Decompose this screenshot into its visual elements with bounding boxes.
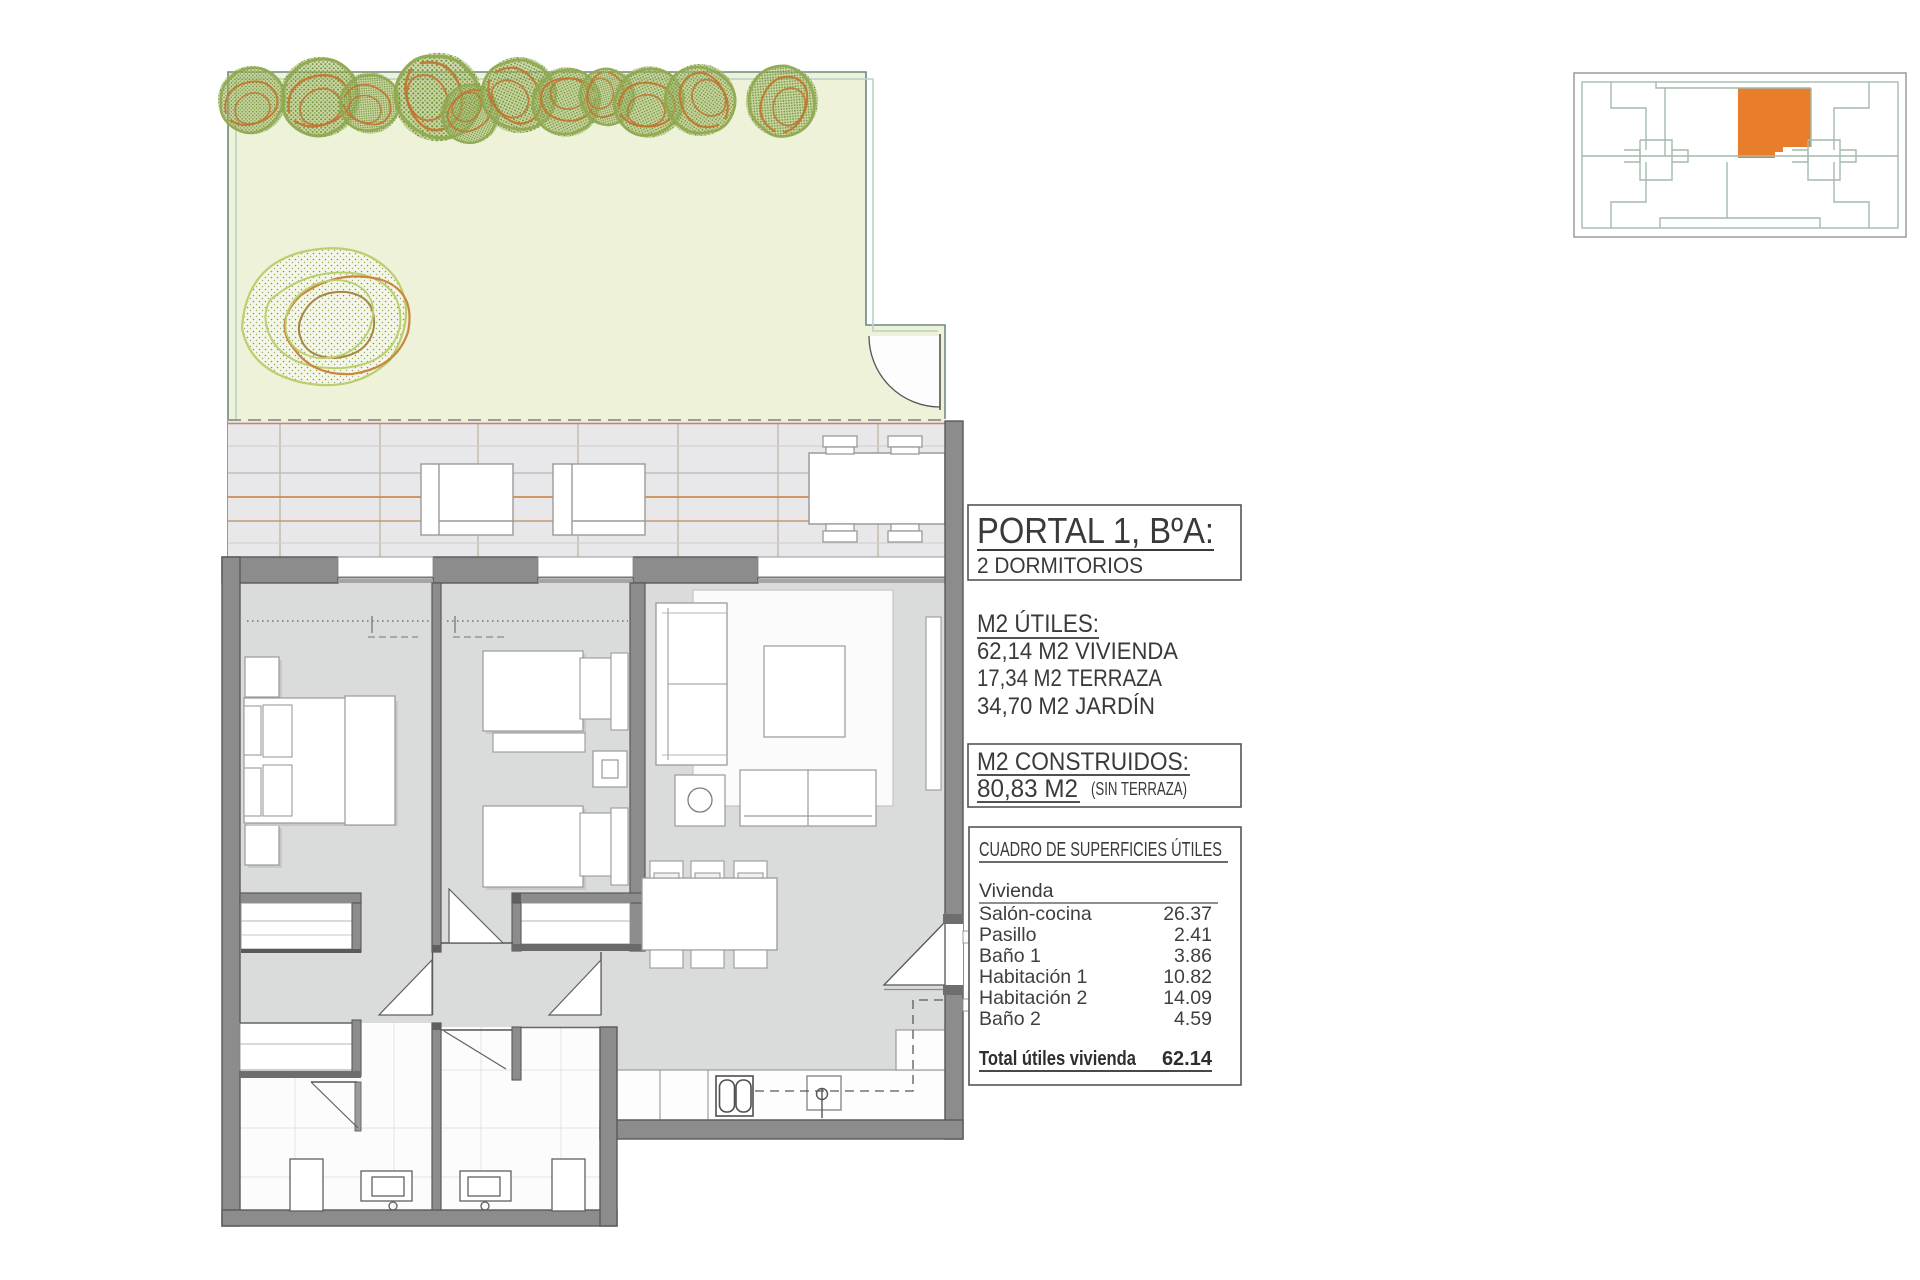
svg-text:PORTAL 1, BºA:: PORTAL 1, BºA: bbox=[977, 510, 1214, 551]
svg-text:4.59: 4.59 bbox=[1174, 1008, 1212, 1030]
svg-text:Habitación 2: Habitación 2 bbox=[979, 987, 1087, 1009]
svg-text:Total útiles vivienda: Total útiles vivienda bbox=[979, 1048, 1137, 1070]
svg-text:Baño 2: Baño 2 bbox=[979, 1008, 1041, 1030]
svg-text:26.37: 26.37 bbox=[1163, 903, 1212, 925]
svg-text:17,34 M2 TERRAZA: 17,34 M2 TERRAZA bbox=[977, 665, 1162, 692]
svg-text:14.09: 14.09 bbox=[1163, 987, 1212, 1009]
svg-text:M2 ÚTILES:: M2 ÚTILES: bbox=[977, 609, 1099, 638]
svg-text:Pasillo: Pasillo bbox=[979, 924, 1037, 946]
svg-text:Habitación 1: Habitación 1 bbox=[979, 966, 1087, 988]
svg-text:62.14: 62.14 bbox=[1162, 1048, 1213, 1070]
svg-text:62,14 M2 VIVIENDA: 62,14 M2 VIVIENDA bbox=[977, 638, 1178, 665]
svg-text:Baño 1: Baño 1 bbox=[979, 945, 1041, 967]
svg-text:Vivienda: Vivienda bbox=[979, 880, 1054, 902]
svg-text:M2 CONSTRUIDOS:: M2 CONSTRUIDOS: bbox=[977, 748, 1189, 776]
svg-text:Salón-cocina: Salón-cocina bbox=[979, 903, 1092, 925]
svg-text:2 DORMITORIOS: 2 DORMITORIOS bbox=[977, 553, 1143, 578]
svg-text:CUADRO DE SUPERFICIES ÚTILES: CUADRO DE SUPERFICIES ÚTILES bbox=[979, 838, 1222, 861]
svg-text:10.82: 10.82 bbox=[1163, 966, 1212, 988]
svg-text:3.86: 3.86 bbox=[1174, 945, 1212, 967]
svg-text:34,70 M2 JARDÍN: 34,70 M2 JARDÍN bbox=[977, 693, 1155, 720]
svg-text:(SIN TERRAZA): (SIN TERRAZA) bbox=[1091, 778, 1187, 799]
svg-text:2.41: 2.41 bbox=[1174, 924, 1212, 946]
svg-text:80,83 M2: 80,83 M2 bbox=[977, 775, 1078, 803]
